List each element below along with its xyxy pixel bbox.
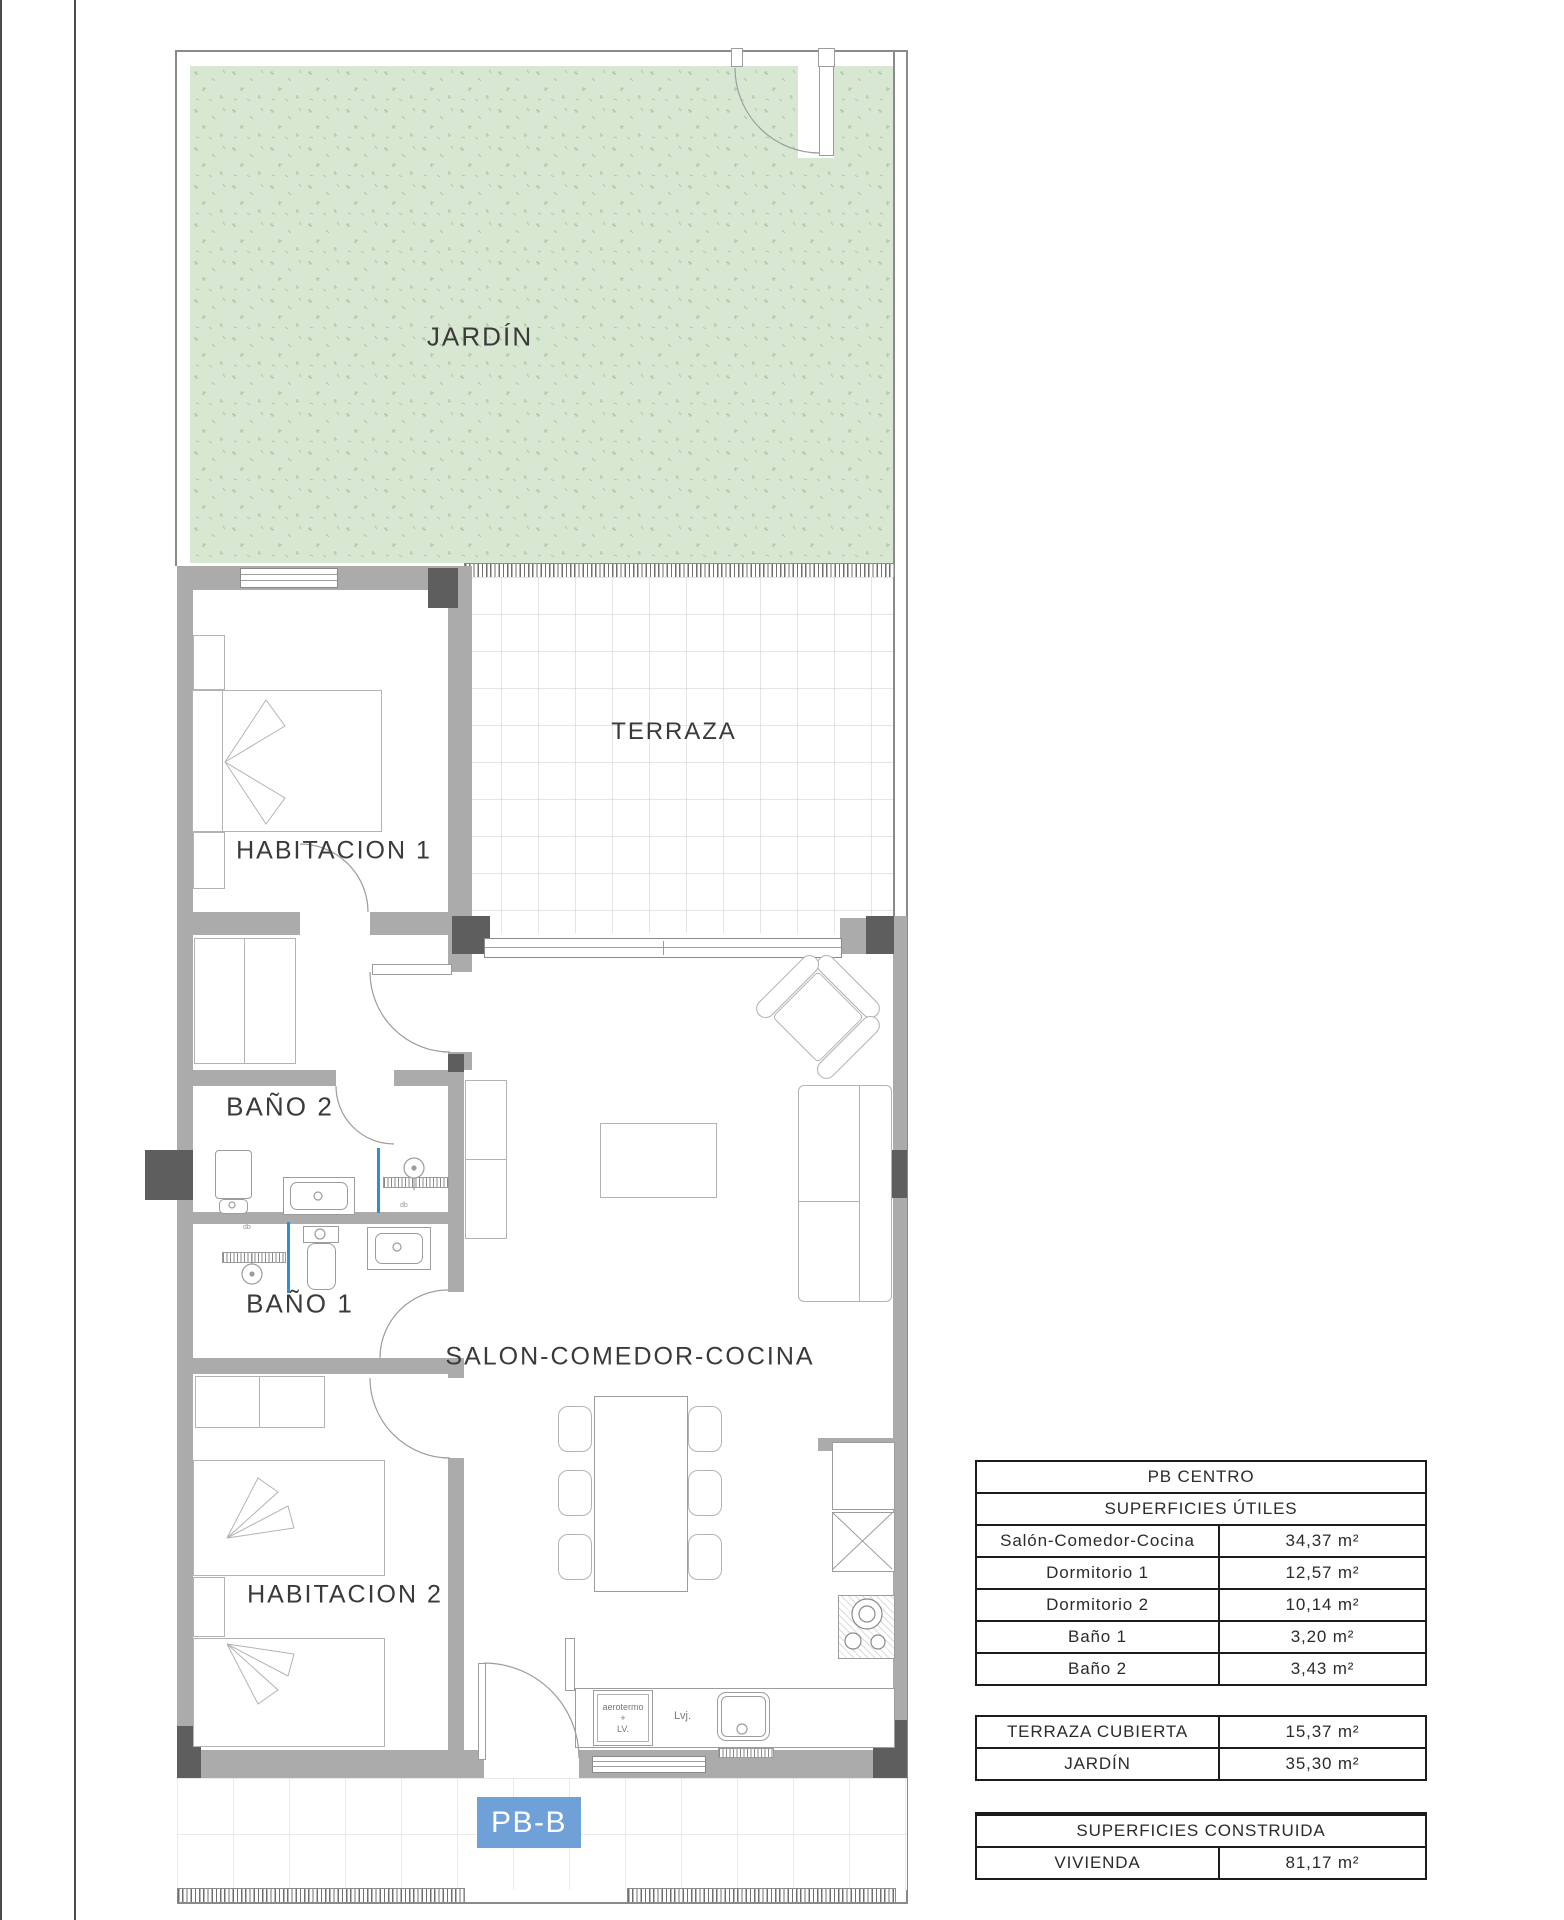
fixture-code-text: db — [400, 1202, 408, 1209]
wall — [893, 916, 907, 1778]
row-label: JARDÍN — [977, 1749, 1218, 1779]
shower-screen — [287, 1222, 290, 1293]
plot-fence-left — [175, 50, 177, 566]
coffee-table — [600, 1123, 717, 1198]
entry-door-leaf — [478, 1663, 486, 1760]
wall — [448, 566, 472, 972]
kitchen-sink-vent — [718, 1748, 774, 1758]
wall — [394, 1070, 448, 1086]
door-arc — [380, 1290, 448, 1358]
plot-fence-right-inner — [893, 50, 895, 918]
bedroom1-window — [240, 568, 338, 588]
terrace-tile-grid — [464, 577, 893, 933]
row-label: Salón-Comedor-Cocina — [977, 1526, 1218, 1556]
wall — [193, 1358, 448, 1374]
toilet — [215, 1150, 252, 1199]
wall — [177, 1750, 437, 1778]
table-title: PB CENTRO — [977, 1462, 1425, 1492]
dining-table — [594, 1396, 688, 1592]
terrace-sliding-door — [484, 938, 842, 958]
hall-door-leaf — [372, 964, 452, 975]
washbasin — [367, 1227, 431, 1270]
wall — [370, 912, 448, 935]
row-label: Dormitorio 2 — [977, 1590, 1218, 1620]
table-subtitle: SUPERFICIES ÚTILES — [977, 1492, 1425, 1524]
sheet-border-line — [0, 0, 2, 1920]
shower-head — [242, 1264, 262, 1284]
toilet-tank — [303, 1226, 339, 1243]
wall — [448, 1458, 464, 1750]
shower-rail — [222, 1252, 286, 1263]
armchair — [753, 943, 892, 1082]
row-value: 3,43 m² — [1218, 1654, 1425, 1684]
unit-badge: PB-B — [477, 1797, 581, 1848]
row-value: 12,57 m² — [1218, 1558, 1425, 1588]
kitchen-window — [592, 1756, 706, 1773]
garden-area — [190, 66, 894, 563]
row-label: VIVIENDA — [977, 1848, 1218, 1878]
table-row: Dormitorio 1 12,57 m² — [977, 1556, 1425, 1588]
terrace-label: TERRAZA — [611, 718, 736, 746]
sofa — [798, 1085, 892, 1302]
salon-cabinet — [465, 1080, 507, 1239]
toilet — [307, 1243, 336, 1290]
table-row: Baño 1 3,20 m² — [977, 1620, 1425, 1652]
bed — [193, 1638, 385, 1747]
pillar — [145, 1150, 193, 1200]
door-arc — [370, 1378, 450, 1458]
row-label: Baño 2 — [977, 1654, 1218, 1684]
toilet-bowl — [219, 1199, 248, 1214]
chair — [688, 1470, 722, 1516]
table-row: VIVIENDA 81,17 m² — [977, 1846, 1425, 1878]
bedroom2-wardrobe — [195, 1376, 325, 1428]
bed — [193, 1460, 385, 1576]
living-room-label: SALON-COMEDOR-COCINA — [445, 1343, 814, 1372]
wall — [448, 1070, 464, 1292]
walkway-edge-hatch — [177, 1888, 465, 1903]
nightstand — [193, 635, 225, 690]
pantry-unit — [832, 1512, 895, 1572]
chair — [558, 1470, 592, 1516]
garden-texture — [190, 66, 894, 563]
pillar — [428, 568, 458, 608]
shower-head — [404, 1158, 424, 1178]
fridge — [832, 1442, 895, 1510]
chair — [558, 1534, 592, 1580]
nightstand — [193, 1577, 225, 1637]
bedroom2-label: HABITACION 2 — [247, 1581, 443, 1610]
table-row: Salón-Comedor-Cocina 34,37 m² — [977, 1524, 1425, 1556]
table-title: SUPERFICIES CONSTRUIDA — [977, 1816, 1425, 1846]
wall — [437, 1750, 484, 1778]
door-arc — [370, 972, 450, 1052]
bath1-label: BAÑO 1 — [246, 1289, 354, 1320]
table-row: Dormitorio 2 10,14 m² — [977, 1588, 1425, 1620]
bed — [192, 690, 382, 832]
stove — [838, 1595, 895, 1659]
counter-end-panel — [565, 1638, 575, 1691]
kitchen-sink — [717, 1692, 770, 1741]
pillar — [866, 916, 894, 954]
shower-screen — [377, 1148, 380, 1213]
hall-wardrobe — [194, 938, 296, 1064]
garden-label: JARDÍN — [427, 322, 533, 353]
row-label: Dormitorio 1 — [977, 1558, 1218, 1588]
door-arc — [336, 1086, 394, 1144]
table-row: Baño 2 3,43 m² — [977, 1652, 1425, 1684]
terrace-edge-hatch — [464, 563, 895, 578]
bedroom1-label: HABITACION 1 — [236, 837, 432, 866]
table-row: JARDÍN 35,30 m² — [977, 1747, 1425, 1779]
aerotermo-label: aerotermo — [602, 1702, 643, 1713]
table-superficies-utiles: PB CENTRO SUPERFICIES ÚTILES Salón-Comed… — [975, 1460, 1427, 1686]
lv-label: LV. — [617, 1724, 629, 1735]
walkway-edge-hatch — [627, 1888, 896, 1903]
terrace-area — [464, 577, 893, 933]
shower-rail — [383, 1177, 449, 1188]
fixture-code-text: db — [243, 1224, 251, 1231]
row-value: 34,37 m² — [1218, 1526, 1425, 1556]
row-value: 81,17 m² — [1218, 1848, 1425, 1878]
bath2-label: BAÑO 2 — [226, 1092, 334, 1123]
row-value: 15,37 m² — [1218, 1717, 1425, 1747]
nightstand — [193, 832, 225, 889]
sheet-inner-border-line — [74, 0, 76, 1920]
aerotermo-unit: aerotermo + LV. — [593, 1690, 653, 1746]
wall — [193, 1070, 336, 1086]
plus-label: + — [620, 1713, 625, 1724]
table-superficies-construida: SUPERFICIES CONSTRUIDA VIVIENDA 81,17 m² — [975, 1812, 1427, 1880]
row-value: 10,14 m² — [1218, 1590, 1425, 1620]
dishwasher-label: Lvj. — [655, 1710, 710, 1722]
table-row: TERRAZA CUBIERTA 15,37 m² — [977, 1717, 1425, 1747]
chair — [688, 1534, 722, 1580]
washbasin — [283, 1177, 355, 1215]
chair — [558, 1406, 592, 1452]
wall — [193, 912, 300, 935]
gate-post — [731, 48, 743, 67]
gate-post — [818, 48, 835, 67]
pillar — [448, 1054, 464, 1072]
chair — [688, 1406, 722, 1452]
row-label: Baño 1 — [977, 1622, 1218, 1652]
row-value: 35,30 m² — [1218, 1749, 1425, 1779]
floor-plan-sheet: JARDÍN TERRAZA — [0, 0, 1564, 1920]
row-label: TERRAZA CUBIERTA — [977, 1717, 1218, 1747]
garden-gate-leaf — [819, 64, 834, 156]
row-value: 3,20 m² — [1218, 1622, 1425, 1652]
table-superficies-exteriores: TERRAZA CUBIERTA 15,37 m² JARDÍN 35,30 m… — [975, 1715, 1427, 1781]
